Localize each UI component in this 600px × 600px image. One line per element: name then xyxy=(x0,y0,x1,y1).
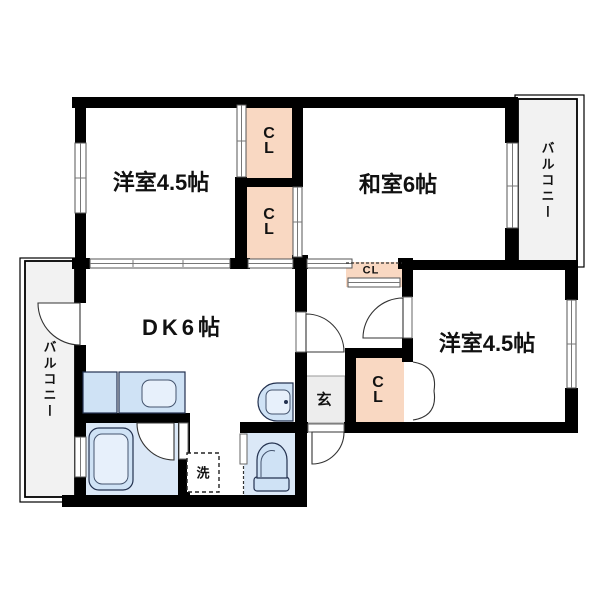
window-top-room-left xyxy=(75,143,86,213)
door-dk-hall xyxy=(296,312,344,352)
sliding-door-dk-top xyxy=(90,259,230,268)
folding-door-right-closet xyxy=(413,362,435,420)
kitchen-counter-icon xyxy=(83,372,185,413)
sliding-door-washitsu-hall xyxy=(307,259,352,268)
room-label-western-right: 洋室4.5帖 xyxy=(439,333,536,355)
balcony-left-label: バルコニー xyxy=(43,340,56,420)
closet-right-label: C L xyxy=(372,375,384,405)
sliding-door-closet-middle-vertical xyxy=(293,187,302,257)
washbasin-icon xyxy=(258,383,293,421)
room-label-western-top: 洋室4.5帖 xyxy=(113,172,210,194)
closet-hall-small-label: CL xyxy=(363,266,380,277)
sliding-door-closet-top-vertical xyxy=(237,105,246,177)
genkan-label: 玄 xyxy=(316,393,331,408)
closet-top-label: C L xyxy=(263,126,275,156)
door-entrance xyxy=(308,424,344,464)
window-bathroom-left xyxy=(75,437,86,477)
room-label-dk: DK6帖 xyxy=(142,317,224,339)
floor-plan-canvas xyxy=(0,0,600,600)
floor-plan: 洋室4.5帖 和室6帖 DK6帖 洋室4.5帖 バルコニー バルコニー C L … xyxy=(0,0,600,600)
balcony-right-label: バルコニー xyxy=(541,141,554,221)
laundry-label: 洗 xyxy=(196,467,209,480)
door-hall-right-room xyxy=(363,297,412,338)
closet-middle-label: C L xyxy=(263,207,275,237)
toilet-icon xyxy=(254,443,289,491)
window-washitsu-right xyxy=(507,143,518,228)
room-label-japanese: 和室6帖 xyxy=(359,174,437,196)
bathtub-icon xyxy=(89,428,133,490)
sliding-door-closet-bottom xyxy=(248,259,293,268)
sliding-door-small-closet xyxy=(348,278,400,287)
window-right-room xyxy=(567,300,576,388)
